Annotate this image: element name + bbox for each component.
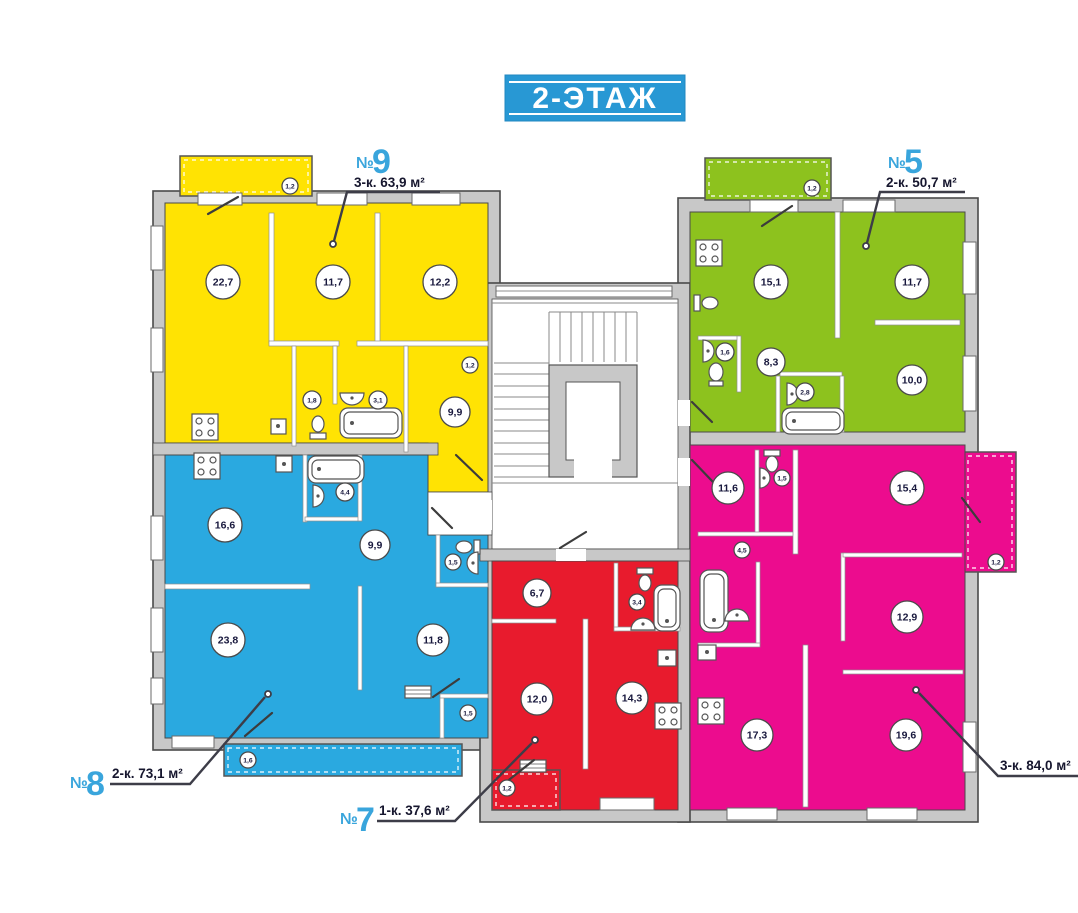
- apt8-spec: 2-к. 73,1 м²: [112, 766, 183, 781]
- svg-text:8,3: 8,3: [764, 357, 779, 369]
- room-area-badge: 3,1: [369, 391, 387, 409]
- svg-text:4,5: 4,5: [737, 547, 747, 554]
- room-area-badge: 1,2: [462, 357, 478, 373]
- bathtub-icon: [340, 408, 402, 438]
- svg-text:12,0: 12,0: [527, 694, 548, 706]
- gap-corridor-landing: [480, 500, 492, 530]
- stove-icon: [696, 240, 722, 266]
- svg-text:1,5: 1,5: [777, 475, 787, 482]
- leader-dot: [532, 737, 538, 743]
- apt7-spec: 1-к. 37,6 м²: [379, 803, 450, 818]
- elevator-shaft: [549, 365, 637, 479]
- svg-text:6,7: 6,7: [530, 588, 545, 600]
- stove-icon: [192, 414, 218, 440]
- svg-text:3,4: 3,4: [632, 599, 642, 606]
- svg-text:8: 8: [86, 765, 105, 803]
- room-area-badge: 3,4: [629, 594, 645, 610]
- svg-text:9,9: 9,9: [448, 407, 463, 419]
- svg-text:1,2: 1,2: [807, 185, 817, 192]
- room-area-badge: 8,3: [757, 348, 785, 376]
- svg-text:11,6: 11,6: [718, 483, 738, 495]
- svg-text:15,4: 15,4: [897, 483, 918, 495]
- gap-landing-apt5: [678, 400, 690, 426]
- svg-text:19,6: 19,6: [896, 730, 917, 742]
- stove-icon: [655, 703, 681, 729]
- floor-plan-drawing: 2-ЭТАЖ: [0, 0, 1078, 913]
- kitchen-sink-icon: [698, 645, 716, 660]
- room-area-badge: 23,8: [211, 623, 245, 657]
- leader-dot: [265, 691, 271, 697]
- room-area-badge: 4,4: [336, 483, 354, 501]
- room-area-badge: 12,0: [521, 683, 553, 715]
- floor-banner: 2-ЭТАЖ: [505, 75, 685, 121]
- svg-text:1,2: 1,2: [465, 362, 475, 369]
- leader-dot: [913, 687, 919, 693]
- room-area-badge: 11,7: [316, 265, 350, 299]
- room-area-badge: 1,2: [988, 554, 1004, 570]
- room-area-badge: 1,5: [445, 554, 461, 570]
- room-area-badge: 19,6: [890, 719, 922, 751]
- svg-text:10,0: 10,0: [902, 375, 923, 387]
- floor-plan-page: 2-ЭТАЖ: [0, 0, 1078, 913]
- bathtub-icon: [308, 456, 364, 483]
- kitchen-sink-icon: [271, 419, 286, 434]
- room-area-badge: 1,2: [499, 780, 515, 796]
- toilet-icon: [694, 295, 718, 311]
- room-area-badge: 15,4: [890, 471, 924, 505]
- room-area-badge: 6,7: [523, 579, 551, 607]
- room-area-badge: 1,5: [774, 470, 790, 486]
- room-area-badge: 4,5: [734, 542, 750, 558]
- room-area-badge: 22,7: [206, 265, 240, 299]
- room-area-badge: 1,6: [716, 343, 734, 361]
- apt5-spec: 2-к. 50,7 м²: [886, 175, 957, 190]
- room-area-badge: 12,9: [891, 601, 923, 633]
- svg-text:1,6: 1,6: [243, 757, 253, 764]
- room-area-badge: 10,0: [897, 365, 927, 395]
- floor-title: 2-ЭТАЖ: [532, 82, 657, 115]
- room-area-badge: 1,5: [460, 705, 476, 721]
- svg-text:12,9: 12,9: [897, 612, 918, 624]
- svg-text:7: 7: [356, 801, 375, 839]
- svg-text:16,6: 16,6: [215, 520, 236, 532]
- svg-text:11,7: 11,7: [902, 277, 922, 289]
- stove-icon: [194, 453, 220, 479]
- svg-text:1,5: 1,5: [448, 559, 458, 566]
- svg-text:14,3: 14,3: [622, 693, 643, 705]
- svg-text:2,8: 2,8: [800, 389, 810, 396]
- bathtub-icon: [654, 585, 680, 631]
- leader-dot: [863, 243, 869, 249]
- svg-text:11,7: 11,7: [323, 277, 343, 289]
- svg-text:9,9: 9,9: [368, 540, 383, 552]
- svg-text:1,6: 1,6: [720, 349, 730, 356]
- svg-text:12,2: 12,2: [430, 277, 451, 289]
- svg-text:1,2: 1,2: [502, 785, 512, 792]
- svg-text:4,4: 4,4: [340, 489, 350, 496]
- svg-text:3,1: 3,1: [373, 397, 383, 404]
- room-area-badge: 14,3: [616, 682, 648, 714]
- svg-text:23,8: 23,8: [218, 635, 239, 647]
- room-area-badge: 1,2: [282, 178, 298, 194]
- apt6-spec: 3-к. 84,0 м²: [1000, 758, 1071, 773]
- svg-text:1,5: 1,5: [463, 710, 473, 717]
- svg-text:17,3: 17,3: [747, 730, 768, 742]
- radiator-icon: [405, 686, 431, 698]
- apt9-spec: 3-к. 63,9 м²: [354, 175, 425, 190]
- balcony-apt8: [224, 744, 462, 776]
- room-area-badge: 11,8: [417, 624, 449, 656]
- room-area-badge: 11,6: [712, 472, 744, 504]
- kitchen-sink-icon: [276, 456, 292, 472]
- room-area-badge: 2,8: [796, 383, 814, 401]
- toilet-icon: [310, 416, 326, 439]
- room-area-badge: 1,8: [303, 391, 321, 409]
- room-area-badge: 1,2: [804, 180, 820, 196]
- svg-text:22,7: 22,7: [213, 277, 234, 289]
- room-area-badge: 15,1: [754, 265, 788, 299]
- gap-landing-apt6: [678, 458, 690, 486]
- svg-text:15,1: 15,1: [761, 277, 782, 289]
- room-area-badge: 9,9: [440, 397, 470, 427]
- room-area-badge: 11,7: [895, 265, 929, 299]
- gap-landing-apt7: [556, 549, 586, 561]
- stove-icon: [698, 698, 724, 724]
- pedestal-sink-icon: [709, 363, 723, 386]
- room-area-badge: 9,9: [360, 530, 390, 560]
- svg-text:11,8: 11,8: [423, 635, 443, 647]
- svg-text:1,8: 1,8: [307, 397, 317, 404]
- toilet-icon: [637, 568, 653, 591]
- room-area-badge: 16,6: [208, 508, 242, 542]
- room-area-badge: 17,3: [741, 719, 773, 751]
- kitchen-sink-icon: [658, 650, 676, 666]
- svg-text:1,2: 1,2: [991, 559, 1001, 566]
- bathtub-icon: [700, 570, 728, 632]
- room-area-badge: 1,6: [240, 752, 256, 768]
- svg-text:1,2: 1,2: [285, 183, 295, 190]
- bathtub-icon: [782, 408, 844, 434]
- leader-dot: [330, 241, 336, 247]
- room-area-badge: 12,2: [423, 265, 457, 299]
